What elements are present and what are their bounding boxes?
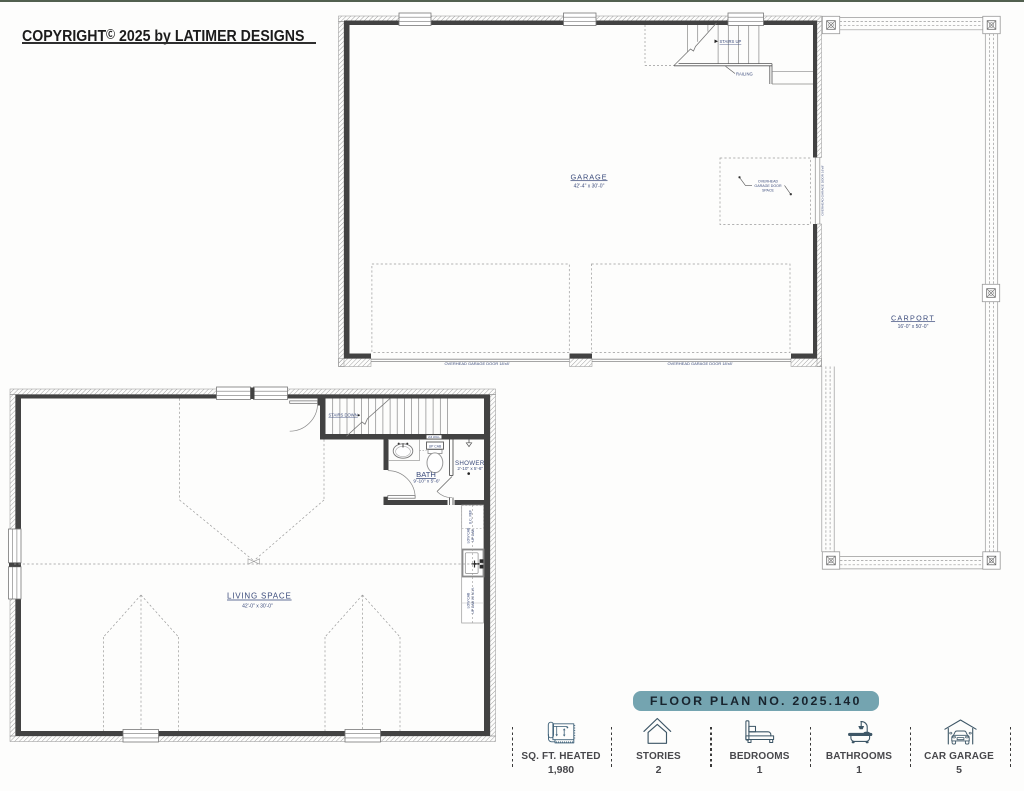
svg-text:UP CAB W/ M.W.: UP CAB W/ M.W. (471, 587, 475, 613)
svg-text:2x6 WALL: 2x6 WALL (428, 435, 440, 439)
svg-text:LOW CAB: LOW CAB (467, 592, 471, 608)
svg-text:U.C. REF: U.C. REF (469, 510, 473, 525)
svg-text:GARAGE: GARAGE (570, 172, 607, 181)
svg-text:42'-4" x 30'-0": 42'-4" x 30'-0" (574, 184, 605, 190)
svg-text:16'-0" x 50'-0": 16'-0" x 50'-0" (898, 324, 929, 330)
svg-text:UP CAB: UP CAB (429, 444, 442, 448)
svg-text:GARAGE DOOR: GARAGE DOOR (754, 184, 782, 188)
svg-text:2'-10" x 5'-6": 2'-10" x 5'-6" (457, 466, 483, 471)
svg-text:STAIRS DOWN: STAIRS DOWN (329, 412, 358, 417)
svg-text:UP CAB: UP CAB (471, 528, 475, 541)
svg-text:LOW CAB: LOW CAB (467, 527, 471, 543)
svg-text:LIVING SPACE: LIVING SPACE (227, 592, 292, 601)
svg-text:OVERHEAD GARAGE DOOR 16'x8': OVERHEAD GARAGE DOOR 16'x8' (821, 165, 825, 216)
svg-text:STAIRS UP: STAIRS UP (720, 39, 742, 44)
svg-text:42'-0" x 30'-0": 42'-0" x 30'-0" (242, 603, 273, 609)
svg-text:OVERHEAD: OVERHEAD (758, 180, 779, 184)
svg-text:SPACE: SPACE (762, 189, 775, 193)
svg-text:9'-10" x 5'-6": 9'-10" x 5'-6" (413, 479, 440, 485)
svg-text:OVERHEAD GARAGE DOOR 18'x8': OVERHEAD GARAGE DOOR 18'x8' (667, 361, 732, 366)
svg-text:CARPORT: CARPORT (891, 313, 935, 322)
svg-text:OVERHEAD GARAGE DOOR 18'x8': OVERHEAD GARAGE DOOR 18'x8' (444, 361, 509, 366)
svg-text:BATH: BATH (416, 470, 436, 479)
svg-text:RAILING: RAILING (736, 72, 753, 77)
